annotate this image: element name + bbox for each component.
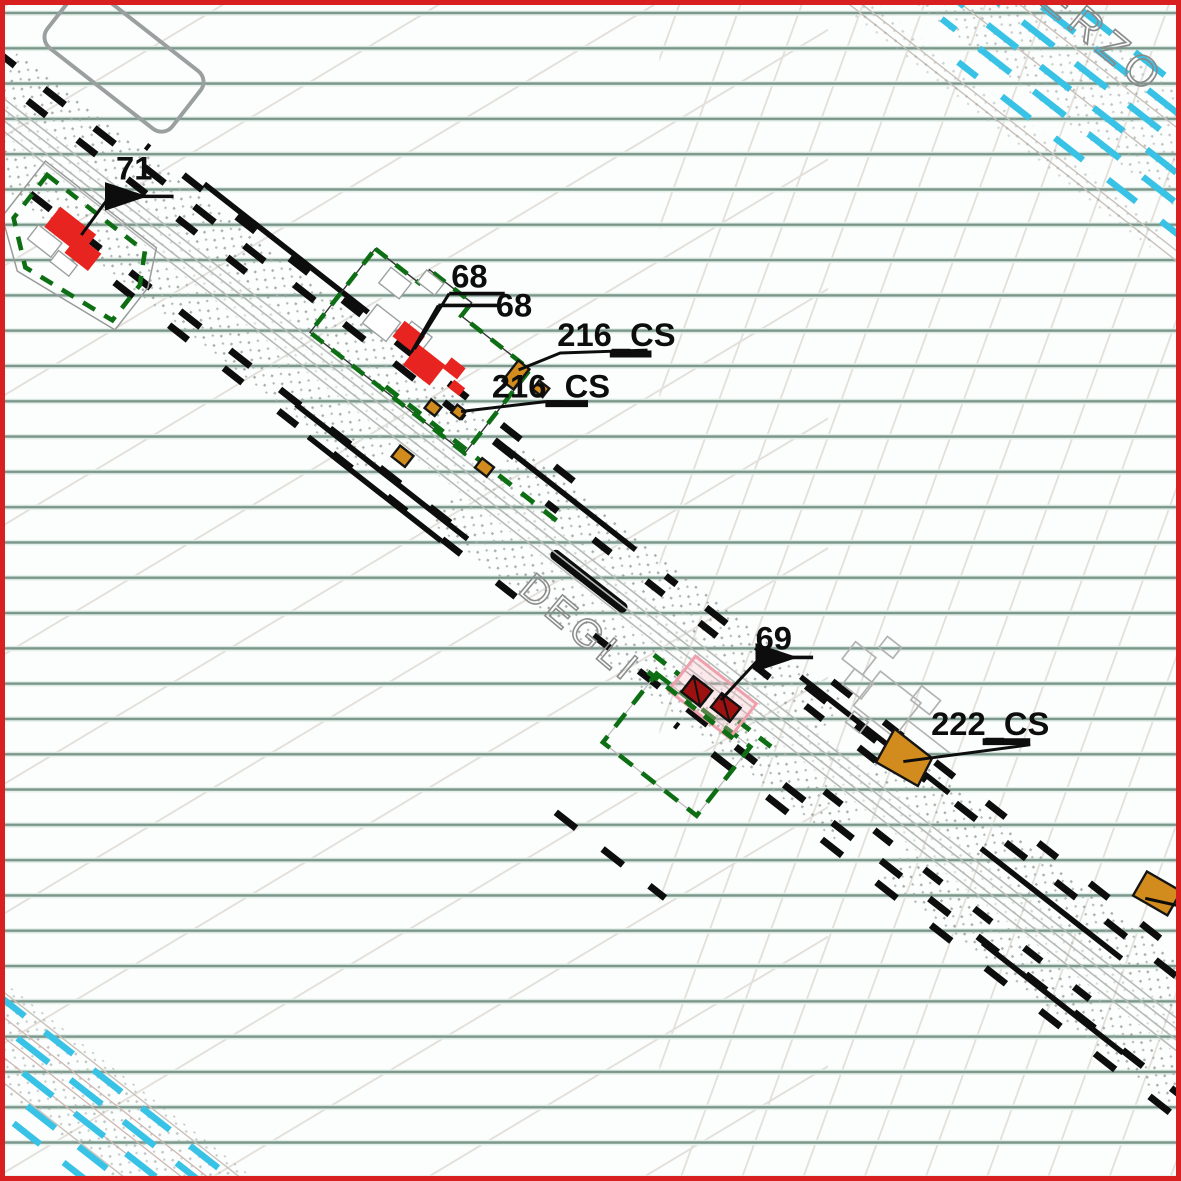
label-216cs-a: 216_CS [557, 316, 675, 353]
label-216cs-b: 216_CS [492, 368, 610, 405]
label-68a: 68 [451, 258, 487, 295]
label-69: 69 [756, 619, 792, 656]
map-viewport[interactable]: DEGLI ERZO 71 68 68 216_CS 216_CS 69 222… [0, 0, 1181, 1181]
cadastral-map-svg: DEGLI ERZO 71 68 68 216_CS 216_CS 69 222… [5, 5, 1176, 1176]
label-68b: 68 [496, 286, 532, 323]
label-71: 71 [116, 150, 152, 187]
label-222cs: 222_CS [931, 705, 1049, 742]
